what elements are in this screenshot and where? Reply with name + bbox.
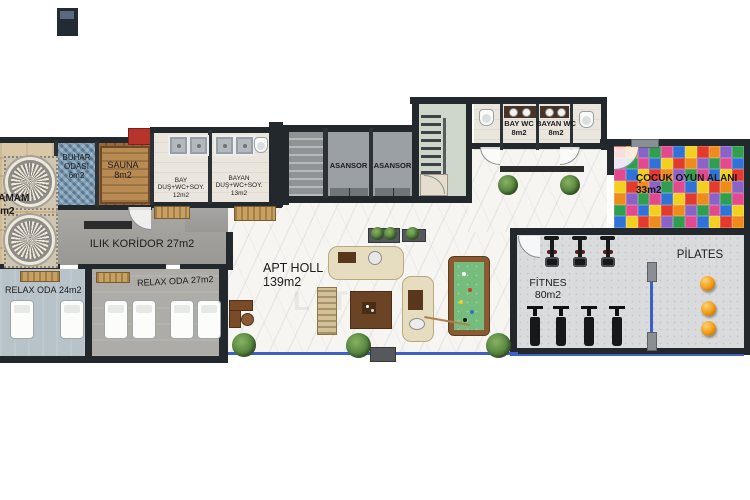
- billiard-ball: [459, 300, 463, 304]
- plant: [486, 333, 511, 358]
- room-bayanwc-label: BAYAN WC 8m2: [535, 120, 577, 137]
- reception-desk-top: [229, 300, 253, 311]
- round-table: [368, 251, 382, 265]
- lounger: [132, 300, 156, 339]
- lounger: [104, 300, 128, 339]
- billiard-ball: [463, 318, 467, 322]
- plant: [232, 333, 256, 357]
- weight-machine: [609, 306, 625, 346]
- partition-post-bottom: [647, 332, 657, 351]
- room-playroom-label: ÇOCUK OYUN ALANI 33m2: [636, 173, 737, 196]
- elevator-1-door: [330, 188, 368, 196]
- sink: [557, 108, 566, 117]
- hamam-medallion: [8, 218, 52, 262]
- stair-rail: [443, 118, 446, 176]
- billiard-ball: [468, 288, 472, 292]
- toilet: [579, 111, 594, 128]
- sofa-table: [408, 290, 423, 310]
- plant: [560, 175, 580, 195]
- room-relax24-label: RELAX ODA 24m2: [5, 285, 82, 295]
- elevator-1-label: ASANSOR: [328, 162, 369, 171]
- planter: [20, 271, 60, 282]
- plant: [498, 175, 518, 195]
- plant: [371, 227, 384, 240]
- room-pilates-label: PİLATES: [672, 249, 728, 262]
- room-warm-corridor-label: ILIK KORİDOR 27m2: [62, 238, 222, 251]
- plant: [384, 227, 397, 240]
- billiard-ball: [470, 310, 474, 314]
- room-hamam-area: 25m2: [0, 206, 15, 218]
- sofa-table: [338, 252, 356, 263]
- stairwell-left: [289, 132, 323, 196]
- toilet: [254, 137, 268, 153]
- pilates-ball: [700, 276, 715, 291]
- room-baywc-label: BAY WC 8m2: [500, 120, 538, 137]
- planter: [96, 272, 130, 283]
- planter: [370, 347, 396, 362]
- lounger: [170, 300, 194, 339]
- room-apt-holl-label: APT HOLL 139m2: [263, 261, 323, 290]
- room-fitness-label: FİTNES 80m2: [522, 277, 574, 301]
- shower-stall: [234, 135, 255, 156]
- table-decor: [366, 305, 369, 308]
- roof-shaft-box: [57, 8, 78, 36]
- sink: [545, 108, 554, 117]
- elevator-2-door: [375, 188, 410, 196]
- lounger: [10, 300, 34, 339]
- floor-plan: LITU HAMAM 25m2 BUHAR ODASI 6m2: [0, 0, 750, 500]
- glass-facade-right: [510, 354, 744, 356]
- plant: [346, 333, 371, 358]
- plant: [406, 227, 419, 240]
- partition-post-top: [647, 262, 657, 282]
- shower-stall: [168, 135, 189, 156]
- sink: [509, 108, 518, 117]
- pilates-ball: [701, 321, 716, 336]
- coffee-table: [362, 302, 376, 314]
- planter: [154, 206, 190, 219]
- lounger: [197, 300, 221, 339]
- billiard-ball: [462, 272, 466, 276]
- weight-machine: [527, 306, 543, 346]
- stair-steps: [421, 110, 441, 174]
- side-table: [409, 318, 425, 330]
- room-hamam-label: HAMAM: [0, 193, 29, 205]
- shelf: [317, 287, 337, 335]
- corridor-wall-seat: [500, 166, 584, 172]
- shower-stall: [214, 135, 235, 156]
- room-bay-dus-label: BAY DUŞ+WC+SOY. 12m2: [155, 177, 207, 199]
- weight-machine: [553, 306, 569, 346]
- toilet: [479, 109, 494, 126]
- exercise-bike: [570, 236, 590, 268]
- desk-chair: [241, 313, 254, 326]
- weight-machine: [581, 306, 597, 346]
- table-decor: [371, 309, 374, 312]
- pilates-ball: [701, 301, 716, 316]
- lounger: [60, 300, 84, 339]
- exercise-bike: [598, 236, 618, 268]
- room-steam-label: BUHAR ODASI 6m2: [57, 153, 96, 181]
- room-bayan-dus-label: BAYAN DUŞ+WC+SOY. 13m2: [213, 175, 265, 197]
- room-sauna-label: SAUNA 8m2: [99, 160, 147, 181]
- sink: [522, 108, 531, 117]
- exercise-bike: [542, 236, 562, 268]
- elevator-2-label: ASANSOR: [373, 162, 412, 171]
- planter: [234, 206, 276, 221]
- shower-stall: [188, 135, 209, 156]
- corridor-bench: [84, 221, 132, 229]
